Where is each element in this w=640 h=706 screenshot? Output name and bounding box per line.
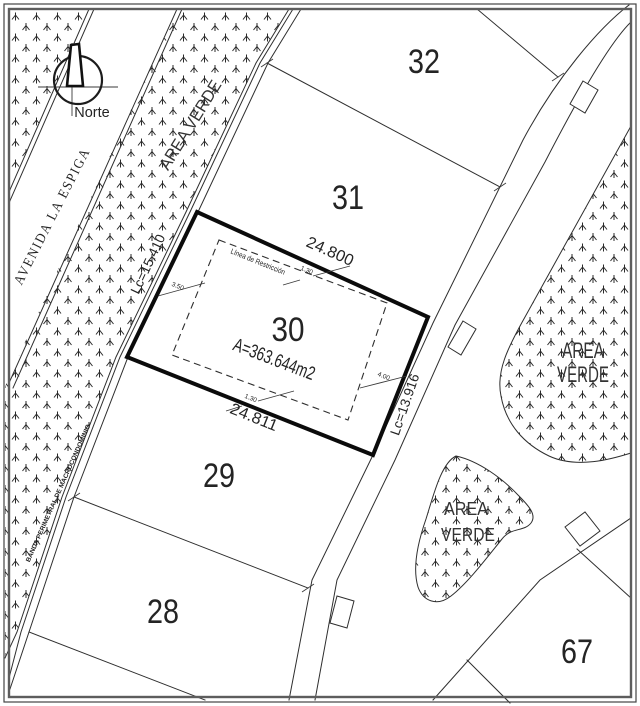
north-arrow-needle — [67, 44, 83, 86]
tick — [68, 493, 80, 501]
tick — [302, 584, 314, 592]
lot67-branch-boundary — [577, 549, 631, 598]
lot32-southeast-boundary — [477, 9, 558, 77]
setback-back-leader-b — [258, 391, 294, 401]
lot30-number: 30 — [272, 311, 305, 349]
lot67-number: 67 — [561, 633, 593, 671]
lot31-number: 31 — [332, 179, 364, 217]
plan-drawing: Norte AVENIDA LA ESPIGA BANDA PERIMETRAL… — [0, 0, 640, 706]
lot32-lot31-boundary — [267, 63, 500, 187]
green-median-strip — [5, 9, 289, 656]
setback-front-dim: 1.30 — [299, 265, 314, 276]
green-area-south-label-line2: VERDE — [441, 525, 495, 545]
green-area-right — [500, 126, 631, 462]
setback-front-leader-a — [283, 280, 300, 285]
road-marker-lot30-corner — [448, 321, 476, 355]
green-area-right-label-line1: AREA — [562, 338, 604, 363]
lot28-number: 28 — [147, 593, 179, 631]
lot29-number: 29 — [203, 457, 235, 495]
cadastral-plan-sheet: Norte AVENIDA LA ESPIGA BANDA PERIMETRAL… — [0, 0, 640, 706]
green-area-right-label-line2: VERDE — [557, 362, 609, 387]
green-area-south-label-line1: AREA — [444, 499, 488, 519]
north-label: Norte — [74, 105, 109, 121]
lot28-south-boundary — [29, 632, 205, 700]
road-marker-southeast — [565, 512, 600, 546]
lot29-lot28-boundary — [74, 497, 308, 588]
lot32-number: 32 — [408, 43, 440, 81]
